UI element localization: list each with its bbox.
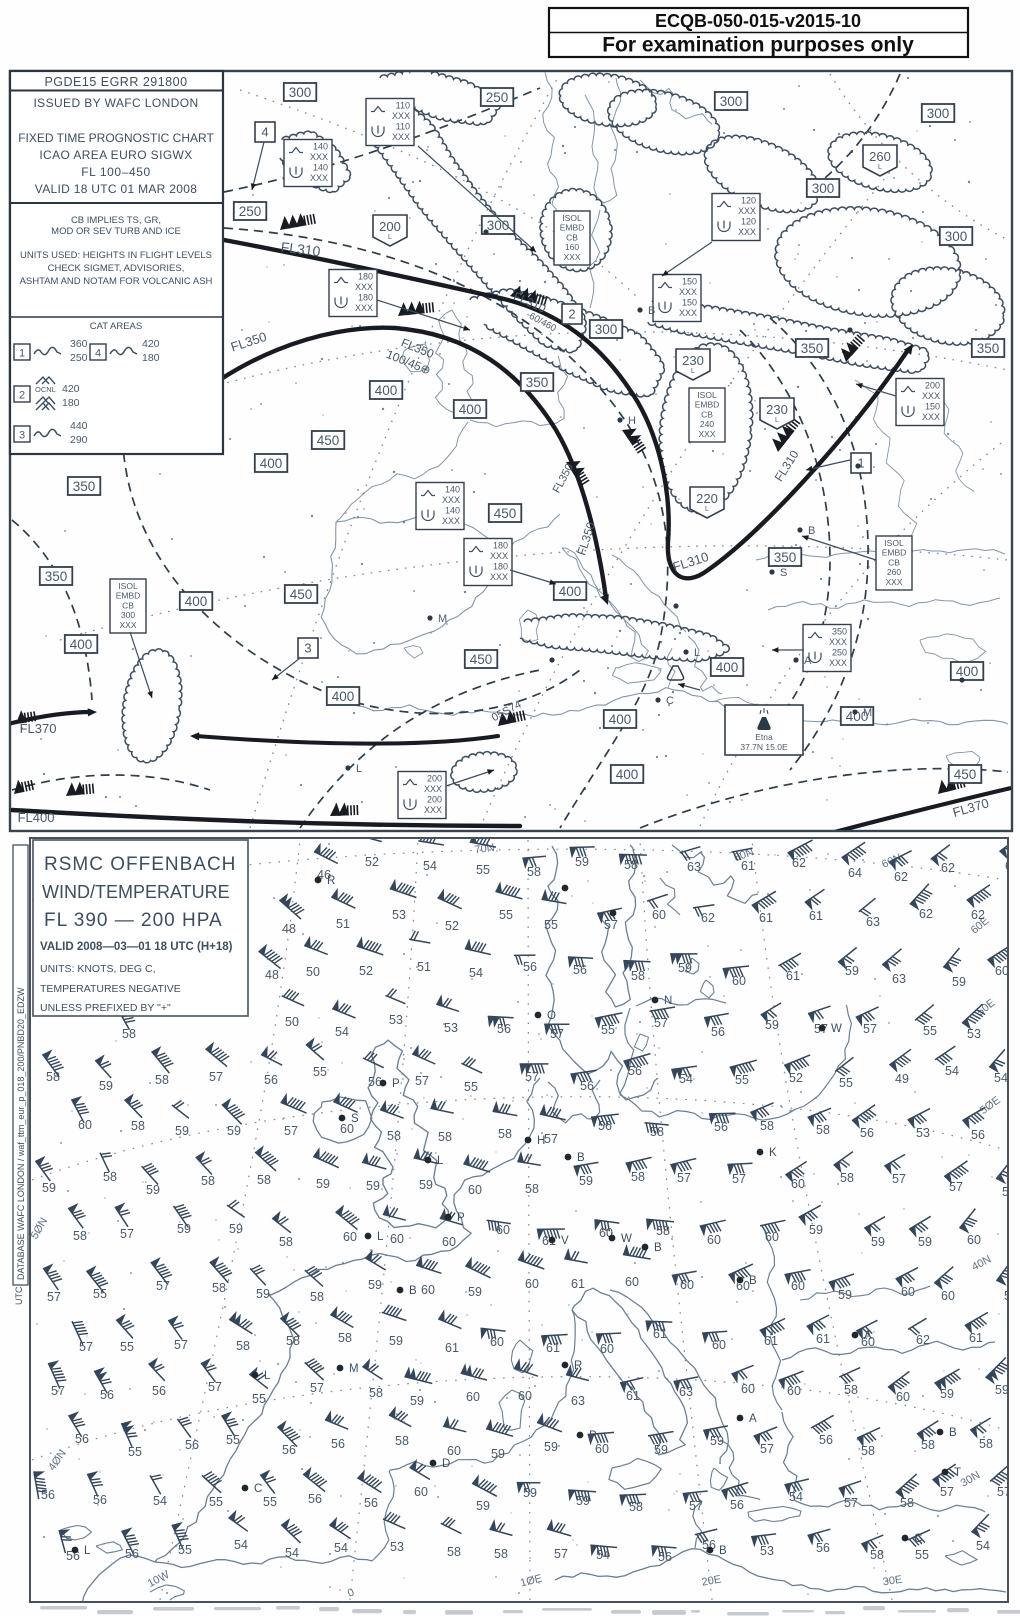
svg-text:55: 55 (601, 1023, 615, 1037)
svg-text:58: 58 (656, 1224, 670, 1238)
svg-text:UTC: UTC (14, 1286, 24, 1305)
svg-text:CB: CB (566, 232, 578, 242)
svg-text:60: 60 (707, 1233, 721, 1247)
svg-text:250: 250 (239, 204, 262, 219)
svg-text:54: 54 (994, 1071, 1008, 1085)
svg-text:58: 58 (73, 1229, 87, 1243)
svg-text:54: 54 (285, 1546, 299, 1560)
svg-text:51: 51 (336, 917, 350, 931)
svg-text:W: W (831, 1023, 842, 1035)
svg-text:CB: CB (122, 600, 134, 610)
svg-text:XXX: XXX (563, 252, 580, 262)
svg-text:L: L (84, 1545, 91, 1557)
svg-text:51: 51 (417, 960, 431, 974)
svg-text:58: 58 (131, 1119, 145, 1133)
svg-text:59: 59 (576, 1494, 590, 1508)
svg-text:55: 55 (120, 1340, 134, 1354)
svg-text:57: 57 (892, 1172, 906, 1186)
svg-text:WIND/TEMPERATURE: WIND/TEMPERATURE (42, 882, 230, 902)
svg-text:59: 59 (42, 1181, 56, 1195)
svg-text:60: 60 (490, 1335, 504, 1349)
svg-text:58: 58 (870, 1548, 884, 1562)
svg-text:300: 300 (812, 181, 835, 196)
svg-text:61: 61 (969, 1331, 983, 1345)
svg-text:59: 59 (410, 1394, 424, 1408)
svg-text:L: L (775, 417, 779, 424)
svg-text:56: 56 (100, 1388, 114, 1402)
svg-text:300: 300 (927, 106, 950, 121)
svg-text:ISSUED BY WAFC LONDON: ISSUED BY WAFC LONDON (33, 96, 198, 110)
svg-text:58: 58 (286, 1334, 300, 1348)
svg-text:55: 55 (915, 1548, 929, 1562)
svg-text:56: 56 (573, 963, 587, 977)
svg-text:56: 56 (264, 1073, 278, 1087)
svg-text:57: 57 (47, 1290, 61, 1304)
svg-text:XXX: XXX (922, 391, 940, 401)
svg-text:57: 57 (689, 1499, 703, 1513)
svg-text:V: V (561, 1235, 569, 1247)
svg-text:VALID 18 UTC 01 MAR 2008: VALID 18 UTC 01 MAR 2008 (35, 182, 197, 196)
svg-text:C: C (254, 1483, 262, 1495)
svg-text:450: 450 (470, 652, 493, 667)
svg-text:60: 60 (600, 1342, 614, 1356)
svg-text:FL 390 — 200 HPA: FL 390 — 200 HPA (44, 910, 223, 931)
svg-text:56: 56 (598, 1119, 612, 1133)
svg-text:400: 400 (260, 456, 283, 471)
svg-text:54: 54 (679, 1072, 693, 1086)
svg-text:XXX: XXX (885, 577, 902, 587)
svg-text:53: 53 (389, 1013, 403, 1027)
svg-text:B: B (654, 1242, 662, 1254)
svg-text:59: 59 (368, 1278, 382, 1292)
svg-text:160: 160 (565, 242, 579, 252)
svg-text:54: 54 (469, 966, 483, 980)
svg-text:XXX: XXX (922, 412, 940, 422)
svg-text:53: 53 (390, 1540, 404, 1554)
svg-text:55: 55 (476, 863, 490, 877)
svg-text:60: 60 (791, 1279, 805, 1293)
svg-text:59: 59 (523, 1486, 537, 1500)
svg-text:56: 56 (75, 1432, 89, 1446)
svg-text:62: 62 (971, 908, 985, 922)
svg-text:57: 57 (554, 1547, 568, 1561)
svg-text:54: 54 (423, 859, 437, 873)
svg-text:R: R (327, 875, 335, 887)
svg-text:58: 58 (155, 1073, 169, 1087)
svg-text:61: 61 (809, 909, 823, 923)
svg-text:ISOL: ISOL (562, 213, 582, 223)
svg-text:57: 57 (544, 1132, 558, 1146)
svg-text:UNITS USED: HEIGHTS IN FLIGHT: UNITS USED: HEIGHTS IN FLIGHT LEVELS (20, 250, 212, 261)
svg-text:UNLESS PREFIXED BY "+": UNLESS PREFIXED BY "+" (40, 1002, 171, 1014)
svg-text:60: 60 (765, 1230, 779, 1244)
svg-text:350: 350 (45, 569, 68, 584)
svg-text:220: 220 (696, 491, 718, 506)
svg-text:EMBD: EMBD (695, 400, 720, 410)
svg-text:59: 59 (809, 1223, 823, 1237)
svg-text:58: 58 (624, 858, 638, 872)
svg-text:XXX: XXX (424, 784, 442, 794)
svg-text:57: 57 (550, 1027, 564, 1041)
svg-text:58: 58 (279, 1235, 293, 1249)
svg-text:60: 60 (343, 1230, 357, 1244)
svg-text:M: M (349, 1363, 359, 1375)
svg-text:59: 59 (575, 855, 589, 869)
svg-text:55: 55 (839, 1076, 853, 1090)
svg-text:EMBD: EMBD (116, 591, 141, 601)
svg-text:4: 4 (261, 125, 268, 140)
svg-text:61: 61 (571, 1277, 585, 1291)
svg-text:58: 58 (861, 1444, 875, 1458)
svg-text:58: 58 (103, 1170, 117, 1184)
svg-text:56: 56 (658, 1550, 672, 1564)
svg-text:57: 57 (156, 1279, 170, 1293)
svg-text:56: 56 (816, 1541, 830, 1555)
svg-text:57: 57 (863, 1022, 877, 1036)
svg-text:L: L (388, 234, 392, 241)
svg-text:58: 58 (816, 1123, 830, 1137)
svg-text:XXX: XXX (392, 132, 410, 142)
svg-text:55: 55 (499, 908, 513, 922)
svg-text:CB: CB (888, 557, 900, 567)
svg-text:60: 60 (421, 1283, 435, 1297)
svg-text:59: 59 (995, 1383, 1009, 1397)
svg-text:CAT AREAS: CAT AREAS (90, 321, 142, 332)
svg-text:58: 58 (760, 1119, 774, 1133)
svg-text:61: 61 (546, 1341, 560, 1355)
svg-text:59: 59 (256, 1287, 270, 1301)
svg-text:260: 260 (869, 149, 891, 164)
svg-text:54: 54 (976, 1539, 990, 1553)
svg-text:260: 260 (887, 567, 901, 577)
svg-text:53: 53 (444, 1021, 458, 1035)
svg-text:R: R (574, 1360, 582, 1372)
svg-text:TEMPERATURES NEGATIVE: TEMPERATURES NEGATIVE (40, 983, 181, 995)
svg-text:B: B (749, 1275, 757, 1287)
svg-text:59: 59 (175, 1124, 189, 1138)
svg-text:56: 56 (125, 1547, 139, 1561)
svg-text:400: 400 (559, 584, 582, 599)
svg-text:XXX: XXX (698, 429, 715, 439)
svg-text:37.7N 15.0E: 37.7N 15.0E (740, 742, 788, 752)
svg-text:440: 440 (70, 420, 88, 432)
svg-text:52: 52 (365, 855, 379, 869)
svg-text:EMBD: EMBD (560, 223, 585, 233)
svg-text:200: 200 (925, 381, 940, 391)
svg-text:56: 56 (364, 1496, 378, 1510)
svg-text:P: P (392, 1078, 400, 1090)
svg-text:60: 60 (468, 1183, 482, 1197)
svg-text:110: 110 (396, 122, 410, 132)
svg-text:60: 60 (414, 1485, 428, 1499)
svg-text:350: 350 (73, 479, 96, 494)
svg-text:60: 60 (680, 1278, 694, 1292)
svg-text:56: 56 (523, 960, 537, 974)
svg-text:60: 60 (741, 1382, 755, 1396)
svg-text:59: 59 (491, 1447, 505, 1461)
svg-text:59: 59 (710, 1434, 724, 1448)
svg-text:57: 57 (120, 1227, 134, 1241)
svg-text:XXX: XXX (679, 287, 697, 297)
svg-text:54: 54 (945, 1064, 959, 1078)
svg-text:P: P (589, 1430, 597, 1442)
svg-text:57: 57 (949, 1180, 963, 1194)
svg-text:B: B (949, 1427, 957, 1439)
svg-text:55: 55 (226, 1433, 240, 1447)
svg-text:XXX: XXX (442, 495, 460, 505)
svg-text:FL370: FL370 (20, 721, 57, 736)
svg-text:UNITS: KNOTS, DEG C,: UNITS: KNOTS, DEG C, (40, 963, 156, 975)
svg-text:55: 55 (464, 1080, 478, 1094)
svg-text:56: 56 (628, 1064, 642, 1078)
svg-text:300: 300 (121, 610, 135, 620)
svg-text:59: 59 (678, 961, 692, 975)
svg-text:CHECK SIGMET, ADVISORIES,: CHECK SIGMET, ADVISORIES, (48, 263, 185, 274)
svg-text:ISOL: ISOL (118, 581, 138, 591)
svg-text:180: 180 (142, 352, 160, 364)
svg-text:55: 55 (209, 1495, 223, 1509)
svg-text:60: 60 (896, 1390, 910, 1404)
svg-text:57: 57 (284, 1124, 298, 1138)
svg-text:140: 140 (313, 142, 328, 152)
svg-text:56: 56 (185, 1438, 199, 1452)
svg-text:55: 55 (923, 1024, 937, 1038)
svg-text:ISOL: ISOL (697, 390, 717, 400)
svg-text:58: 58 (494, 1547, 508, 1561)
svg-text:N: N (664, 995, 672, 1007)
svg-text:420: 420 (62, 383, 80, 395)
svg-text:62: 62 (894, 870, 908, 884)
svg-text:450: 450 (954, 767, 977, 782)
svg-text:XXX: XXX (355, 282, 373, 292)
svg-text:400: 400 (185, 594, 208, 609)
svg-text:D: D (442, 1458, 450, 1470)
svg-text:59: 59 (366, 1179, 380, 1193)
svg-text:59: 59 (765, 1018, 779, 1032)
svg-text:T: T (954, 1467, 961, 1479)
svg-text:58: 58 (840, 1171, 854, 1185)
svg-text:53: 53 (760, 1544, 774, 1558)
svg-text:B: B (409, 1285, 417, 1297)
svg-text:61: 61 (626, 1389, 640, 1403)
svg-text:55: 55 (263, 1495, 277, 1509)
svg-text:400: 400 (716, 660, 739, 675)
svg-text:3: 3 (304, 641, 311, 656)
svg-text:240: 240 (700, 419, 714, 429)
svg-text:450: 450 (317, 433, 340, 448)
svg-text:61: 61 (445, 1341, 459, 1355)
svg-text:150: 150 (682, 298, 697, 308)
svg-text:58: 58 (525, 1182, 539, 1196)
svg-text:50: 50 (285, 1015, 299, 1029)
svg-text:59: 59 (845, 964, 859, 978)
svg-text:58: 58 (631, 969, 645, 983)
svg-text:56: 56 (860, 1126, 874, 1140)
svg-text:58: 58 (201, 1174, 215, 1188)
svg-text:57: 57 (654, 1016, 668, 1030)
svg-text:60: 60 (732, 974, 746, 988)
svg-text:OCNL: OCNL (35, 385, 56, 394)
svg-text:55: 55 (178, 1543, 192, 1557)
svg-text:XXX: XXX (829, 637, 847, 647)
svg-text:XXX: XXX (424, 805, 442, 815)
svg-text:59: 59 (918, 1235, 932, 1249)
svg-text:XXX: XXX (310, 173, 328, 183)
svg-text:60: 60 (595, 1442, 609, 1456)
svg-text:56: 56 (711, 1025, 725, 1039)
svg-text:180: 180 (493, 541, 508, 551)
svg-text:58: 58 (438, 1130, 452, 1144)
svg-text:63: 63 (571, 1394, 585, 1408)
svg-text:59: 59 (177, 1222, 191, 1236)
svg-text:300: 300 (945, 229, 968, 244)
svg-text:58: 58 (447, 1545, 461, 1559)
svg-text:53: 53 (967, 1027, 981, 1041)
svg-text:61: 61 (786, 969, 800, 983)
svg-text:58: 58 (498, 1127, 512, 1141)
svg-text:XXX: XXX (119, 620, 136, 630)
svg-text:53: 53 (392, 908, 406, 922)
svg-text:61: 61 (764, 1334, 778, 1348)
svg-text:62: 62 (916, 1333, 930, 1347)
svg-text:58: 58 (631, 1170, 645, 1184)
svg-text:W: W (621, 1233, 632, 1245)
svg-text:54: 54 (234, 1538, 248, 1552)
svg-text:52: 52 (445, 919, 459, 933)
svg-text:DATABASE WAFC LONDON / waf_ttm: DATABASE WAFC LONDON / waf_ttm_eur_p_018… (16, 987, 26, 1280)
svg-text:53: 53 (916, 1126, 930, 1140)
svg-text:62: 62 (919, 907, 933, 921)
svg-text:200: 200 (427, 774, 442, 784)
svg-text:60: 60 (525, 1277, 539, 1291)
svg-text:54: 54 (789, 1490, 803, 1504)
svg-text:56: 56 (714, 1120, 728, 1134)
svg-text:58: 58 (236, 1339, 250, 1353)
svg-text:55: 55 (252, 1392, 266, 1406)
svg-text:58: 58 (527, 865, 541, 879)
svg-text:57: 57 (940, 1485, 954, 1499)
svg-text:58: 58 (650, 1125, 664, 1139)
svg-text:XXX: XXX (829, 658, 847, 668)
svg-text:60: 60 (496, 1223, 510, 1237)
svg-text:56: 56 (819, 1433, 833, 1447)
svg-text:48: 48 (265, 968, 279, 982)
svg-text:250: 250 (70, 352, 88, 364)
svg-text:L: L (437, 1155, 444, 1167)
svg-text:PGDE15 EGRR 291800: PGDE15 EGRR 291800 (44, 75, 187, 89)
svg-text:150: 150 (925, 402, 940, 412)
svg-text:59: 59 (838, 1288, 852, 1302)
svg-text:63: 63 (679, 1385, 693, 1399)
svg-text:B: B (577, 1152, 585, 1164)
svg-text:58: 58 (122, 1027, 136, 1041)
svg-text:60: 60 (447, 1444, 461, 1458)
svg-text:ECQB-050-015-v2015-10: ECQB-050-015-v2015-10 (655, 11, 861, 31)
svg-text:400: 400 (616, 767, 639, 782)
svg-text:55: 55 (313, 1065, 327, 1079)
svg-text:140: 140 (313, 163, 328, 173)
svg-text:58: 58 (387, 1129, 401, 1143)
svg-text:56: 56 (580, 1079, 594, 1093)
svg-text:400: 400 (609, 712, 632, 727)
svg-text:2: 2 (568, 307, 575, 322)
svg-text:63: 63 (866, 915, 880, 929)
svg-text:L: L (705, 506, 709, 513)
svg-text:57: 57 (604, 918, 618, 932)
svg-text:P: P (457, 1212, 465, 1224)
svg-text:59: 59 (940, 1387, 954, 1401)
svg-text:56: 56 (41, 1488, 55, 1502)
svg-text:C: C (666, 695, 674, 707)
svg-text:XXX: XXX (738, 206, 756, 216)
svg-text:XXX: XXX (490, 551, 508, 561)
svg-text:55: 55 (128, 1445, 142, 1459)
svg-text:59: 59 (654, 1443, 668, 1457)
svg-text:57: 57 (310, 1381, 324, 1395)
svg-text:ASHTAM AND NOTAM FOR VOLCANIC: ASHTAM AND NOTAM FOR VOLCANIC ASH (20, 276, 213, 287)
svg-text:58: 58 (900, 1496, 914, 1510)
svg-text:64: 64 (848, 866, 862, 880)
svg-text:300: 300 (289, 85, 312, 100)
svg-text:48: 48 (282, 922, 296, 936)
svg-text:A: A (749, 1413, 757, 1425)
svg-text:57: 57 (209, 1070, 223, 1084)
svg-text:230: 230 (766, 402, 788, 417)
svg-text:58: 58 (338, 1331, 352, 1345)
svg-text:180: 180 (62, 397, 80, 409)
svg-text:1: 1 (19, 348, 25, 360)
svg-text:400: 400 (332, 689, 355, 704)
svg-text:L: L (377, 1231, 384, 1243)
svg-text:59: 59 (544, 1440, 558, 1454)
svg-text:Etna: Etna (755, 732, 773, 742)
svg-text:XXX: XXX (355, 303, 373, 313)
svg-text:XXX: XXX (490, 572, 508, 582)
svg-text:L: L (878, 164, 882, 171)
svg-text:56: 56 (308, 1492, 322, 1506)
svg-text:3: 3 (19, 430, 25, 442)
svg-text:59: 59 (476, 1499, 490, 1513)
svg-text:58: 58 (629, 1500, 643, 1514)
svg-text:59: 59 (871, 1235, 885, 1249)
svg-text:XXX: XXX (679, 308, 697, 318)
svg-text:350: 350 (774, 550, 797, 565)
svg-text:140: 140 (445, 506, 460, 516)
svg-text:56: 56 (730, 1498, 744, 1512)
svg-text:B: B (719, 1545, 727, 1557)
svg-text:For examination purposes only: For examination purposes only (602, 34, 914, 57)
svg-text:55: 55 (93, 1287, 107, 1301)
svg-text:59: 59 (227, 1124, 241, 1138)
svg-text:230: 230 (682, 353, 704, 368)
svg-text:A: A (864, 1330, 872, 1342)
svg-text:400: 400 (956, 664, 979, 679)
svg-text:CB: CB (701, 409, 713, 419)
svg-text:L: L (356, 763, 362, 775)
svg-text:56: 56 (971, 1128, 985, 1142)
svg-text:60: 60 (712, 1338, 726, 1352)
svg-text:ICAO AREA EURO SIGWX: ICAO AREA EURO SIGWX (39, 148, 192, 162)
svg-text:400: 400 (459, 402, 482, 417)
svg-text:61: 61 (816, 1332, 830, 1346)
svg-text:4: 4 (95, 348, 101, 360)
svg-text:450: 450 (290, 587, 313, 602)
svg-text:L: L (264, 1370, 271, 1382)
svg-text:55: 55 (735, 1073, 749, 1087)
svg-text:54: 54 (335, 1025, 349, 1039)
svg-text:58: 58 (369, 1386, 383, 1400)
svg-text:57: 57 (732, 1172, 746, 1186)
